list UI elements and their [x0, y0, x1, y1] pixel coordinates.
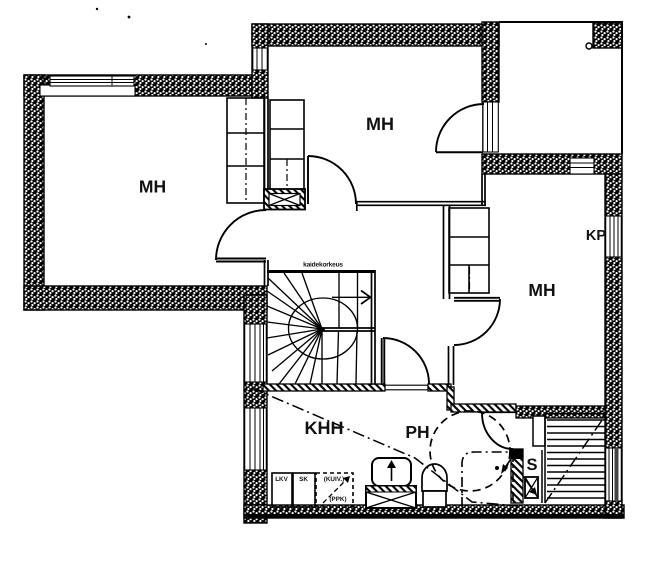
- svg-text:MH: MH: [366, 114, 394, 134]
- svg-text:kaidekorkeus: kaidekorkeus: [303, 262, 343, 269]
- svg-text:MH: MH: [528, 280, 555, 300]
- svg-text:(PPK): (PPK): [329, 496, 346, 503]
- svg-text:SK: SK: [299, 476, 308, 483]
- svg-text:KHH: KHH: [305, 418, 344, 438]
- svg-text:(KUIV.): (KUIV.): [324, 476, 344, 483]
- svg-text:S: S: [526, 456, 537, 474]
- svg-text:LKV: LKV: [275, 476, 288, 483]
- svg-text:MH: MH: [139, 177, 166, 197]
- svg-text:PH: PH: [405, 422, 429, 442]
- svg-text:KP: KP: [586, 228, 606, 244]
